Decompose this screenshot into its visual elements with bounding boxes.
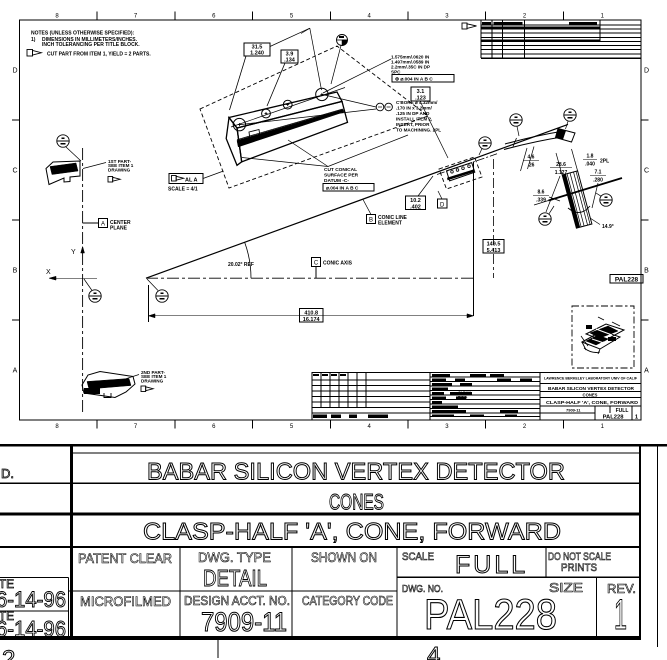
svg-text:.170 IN x 3.2mm/: .170 IN x 3.2mm/ xyxy=(396,106,432,111)
svg-text:3: 3 xyxy=(445,424,449,430)
svg-text:2: 2 xyxy=(523,14,527,20)
svg-text:7909-11: 7909-11 xyxy=(566,408,581,413)
svg-text:3.1: 3.1 xyxy=(417,89,425,95)
svg-text:CUT CONICAL: CUT CONICAL xyxy=(324,167,357,173)
svg-text:4: 4 xyxy=(368,14,372,20)
svg-text:5.413: 5.413 xyxy=(487,248,501,254)
svg-text:C: C xyxy=(12,168,17,175)
svg-text:B: B xyxy=(13,268,18,275)
svg-text:PAL228: PAL228 xyxy=(615,276,639,283)
svg-text:CATEGORY CODE: CATEGORY CODE xyxy=(302,594,393,608)
svg-text:LAWRENCE BERKELEY LABORATORY U: LAWRENCE BERKELEY LABORATORY UNIV OF CAL… xyxy=(544,377,638,381)
svg-text:SPC: SPC xyxy=(391,69,401,74)
svg-text:NOTES (UNLESS OTHERWISE SPECIF: NOTES (UNLESS OTHERWISE SPECIFIED): xyxy=(31,31,135,37)
svg-text:2: 2 xyxy=(523,424,527,430)
svg-text:SCALE = 4/1: SCALE = 4/1 xyxy=(168,187,198,193)
svg-text:MICROFILMED: MICROFILMED xyxy=(80,593,171,609)
svg-text:SURFACE PER: SURFACE PER xyxy=(324,173,359,179)
svg-text:TO MACHINING. 2PL: TO MACHINING. 2PL xyxy=(396,128,441,133)
svg-text:PLANE: PLANE xyxy=(110,226,128,232)
svg-text:.134: .134 xyxy=(284,58,296,64)
svg-text:14.9°: 14.9° xyxy=(602,224,614,230)
svg-text:1.8: 1.8 xyxy=(587,154,594,160)
svg-text:4.6: 4.6 xyxy=(528,155,535,161)
svg-text:D: D xyxy=(440,202,445,208)
svg-text:2: 2 xyxy=(2,646,15,660)
svg-text:7.1: 7.1 xyxy=(595,170,602,176)
svg-text:CLEAN: CLEAN xyxy=(458,391,471,395)
svg-text:PAL228: PAL228 xyxy=(424,591,557,639)
svg-text:149.5: 149.5 xyxy=(487,242,501,248)
svg-text:CONES: CONES xyxy=(583,392,598,397)
svg-text:16.174: 16.174 xyxy=(303,317,321,323)
svg-text:⊕ ⌀.004 IN A B C: ⊕ ⌀.004 IN A B C xyxy=(395,77,433,83)
svg-text:DWG. TYPE: DWG. TYPE xyxy=(198,549,271,565)
svg-text:Y: Y xyxy=(71,249,76,256)
svg-text:CONIC AXIS: CONIC AXIS xyxy=(323,261,353,267)
svg-text:BABAR SILICON VERTEX DETECTOR: BABAR SILICON VERTEX DETECTOR xyxy=(548,386,634,391)
svg-text:INCH TOLERANCING PER TITLE BLO: INCH TOLERANCING PER TITLE BLOCK. xyxy=(42,42,140,48)
svg-text:D.: D. xyxy=(1,466,14,481)
svg-text:8: 8 xyxy=(55,424,59,430)
svg-text:A: A xyxy=(101,222,105,228)
svg-text:PRINTS: PRINTS xyxy=(561,562,597,574)
svg-text:DATE: DATE xyxy=(0,609,14,623)
svg-text:28.6: 28.6 xyxy=(556,162,566,168)
svg-text:FULL: FULL xyxy=(616,408,629,414)
svg-text:DETAIL: DETAIL xyxy=(203,565,267,591)
svg-text:A: A xyxy=(644,368,649,375)
svg-text:X: X xyxy=(46,269,51,276)
svg-text:1): 1) xyxy=(31,37,36,43)
svg-text:BABAR SILICON VERTEX DETECTOR: BABAR SILICON VERTEX DETECTOR xyxy=(147,459,565,486)
svg-text:SIZE: SIZE xyxy=(549,581,583,595)
svg-text:.339: .339 xyxy=(536,198,546,204)
svg-text:A: A xyxy=(13,368,18,375)
svg-text:7: 7 xyxy=(134,14,138,20)
svg-text:C'BORE ⌀ 4.32mm/: C'BORE ⌀ 4.32mm/ xyxy=(396,100,438,105)
svg-text:5: 5 xyxy=(290,14,294,20)
svg-text:410.8: 410.8 xyxy=(304,311,318,317)
svg-text:DRAWING: DRAWING xyxy=(141,378,164,383)
svg-text:.040: .040 xyxy=(585,162,595,168)
svg-text:10.2: 10.2 xyxy=(410,198,421,204)
svg-text:SCALE: SCALE xyxy=(402,551,434,563)
svg-text:FULL: FULL xyxy=(455,551,528,579)
svg-text:.402: .402 xyxy=(410,204,421,210)
svg-text:ELEMENT: ELEMENT xyxy=(378,221,402,227)
svg-text:4: 4 xyxy=(368,424,372,430)
svg-text:.26: .26 xyxy=(528,163,535,169)
svg-text:.280: .280 xyxy=(593,178,603,184)
svg-text:8: 8 xyxy=(55,14,59,20)
svg-text:⌀.004 IN A B C: ⌀.004 IN A B C xyxy=(326,186,359,192)
svg-text:1.240: 1.240 xyxy=(250,51,264,57)
svg-text:PAL228: PAL228 xyxy=(603,414,625,420)
svg-text:PATENT CLEAR: PATENT CLEAR xyxy=(78,550,172,566)
svg-text:CLASP-HALF 'A', CONE, FORWARD: CLASP-HALF 'A', CONE, FORWARD xyxy=(546,400,638,405)
svg-text:D: D xyxy=(12,68,17,75)
svg-text:CONES: CONES xyxy=(329,490,384,515)
svg-text:REV.: REV. xyxy=(607,582,636,596)
svg-text:7909-11: 7909-11 xyxy=(201,607,287,637)
svg-text:SHOWN ON: SHOWN ON xyxy=(311,549,377,565)
svg-text:INSERT, PRIOR: INSERT, PRIOR xyxy=(396,122,430,127)
svg-text:CUT PART FROM ITEM 1, YIELD =: CUT PART FROM ITEM 1, YIELD = 2 PARTS. xyxy=(47,52,151,58)
svg-text:B: B xyxy=(369,218,373,224)
svg-text:C: C xyxy=(314,261,319,267)
svg-text:.125 IN DP AND: .125 IN DP AND xyxy=(396,111,430,116)
svg-text:INSTALL ITEM 2,: INSTALL ITEM 2, xyxy=(396,117,432,122)
svg-text:1: 1 xyxy=(601,14,605,20)
svg-text:D: D xyxy=(644,68,649,75)
svg-text:4: 4 xyxy=(427,643,440,660)
svg-text:B: B xyxy=(644,268,649,275)
svg-text:6: 6 xyxy=(212,424,216,430)
svg-text:20.02° REF: 20.02° REF xyxy=(228,262,254,268)
svg-text:DATE: DATE xyxy=(0,577,14,591)
svg-text:3: 3 xyxy=(445,14,449,20)
svg-text:7: 7 xyxy=(134,424,138,430)
svg-text:AL A: AL A xyxy=(185,178,198,184)
svg-text:1: 1 xyxy=(601,424,605,430)
svg-text:C: C xyxy=(644,168,649,175)
svg-text:DESIGN ACCT. NO.: DESIGN ACCT. NO. xyxy=(184,594,290,608)
svg-text:6: 6 xyxy=(212,14,216,20)
svg-text:DWG: DWG xyxy=(458,396,467,400)
svg-text:CLASP-HALF 'A', CONE, FORWARD: CLASP-HALF 'A', CONE, FORWARD xyxy=(143,519,561,546)
svg-text:5: 5 xyxy=(290,424,294,430)
svg-text:1: 1 xyxy=(614,591,627,639)
svg-text:2PL: 2PL xyxy=(600,159,609,165)
svg-text:DWG. NO.: DWG. NO. xyxy=(402,583,443,595)
svg-text:8.6: 8.6 xyxy=(538,190,545,196)
svg-text:DRAWING: DRAWING xyxy=(108,167,131,172)
